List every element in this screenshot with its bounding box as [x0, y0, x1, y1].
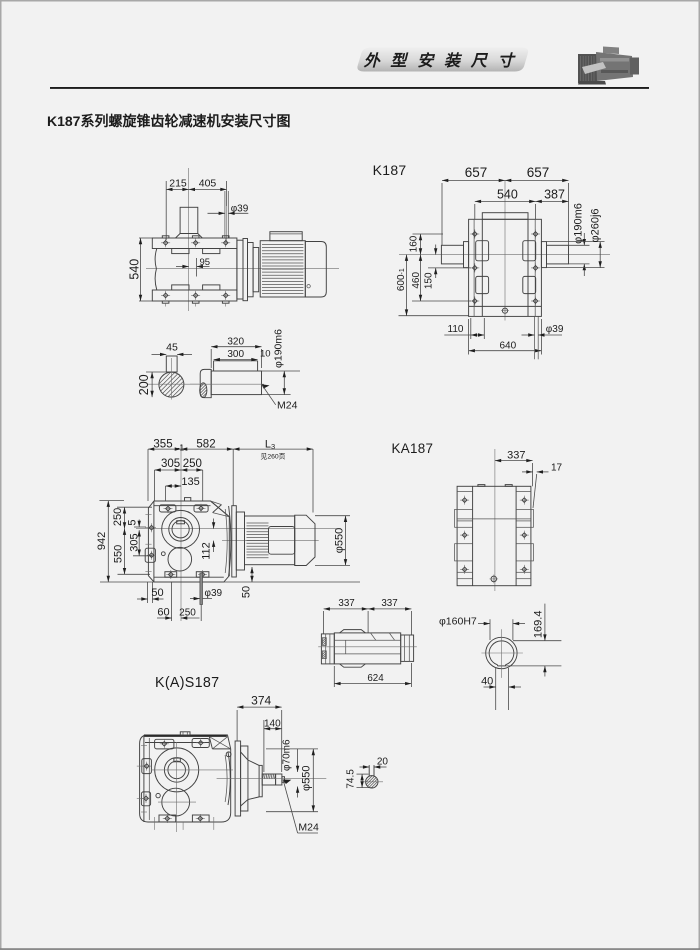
svg-text:160: 160: [409, 235, 420, 252]
svg-text:460: 460: [411, 272, 422, 289]
svg-text:20: 20: [377, 756, 389, 767]
svg-text:169.4: 169.4: [532, 611, 544, 639]
svg-text:φ260j6: φ260j6: [589, 208, 601, 242]
svg-text:405: 405: [199, 178, 217, 190]
svg-text:KA187: KA187: [392, 441, 434, 456]
svg-text:40: 40: [481, 676, 493, 688]
svg-text:640: 640: [499, 340, 516, 351]
svg-text:45: 45: [166, 341, 178, 353]
svg-text:φ550: φ550: [300, 766, 312, 792]
svg-text:320: 320: [227, 337, 244, 348]
svg-text:657: 657: [465, 165, 488, 180]
svg-text:-1: -1: [177, 443, 185, 452]
svg-text:582: 582: [196, 438, 215, 450]
svg-text:M24: M24: [298, 822, 319, 834]
svg-text:φ39: φ39: [231, 204, 249, 215]
svg-text:337: 337: [381, 598, 397, 609]
svg-text:φ190m6: φ190m6: [572, 203, 584, 244]
svg-text:17: 17: [551, 462, 563, 473]
svg-text:140: 140: [264, 718, 281, 729]
svg-text:540: 540: [497, 188, 518, 202]
svg-text:135: 135: [181, 476, 199, 488]
svg-text:200: 200: [137, 374, 151, 395]
svg-text:φ70m6: φ70m6: [281, 739, 292, 771]
svg-text:外型安装尺寸: 外型安装尺寸: [363, 52, 525, 70]
svg-text:337: 337: [338, 598, 354, 609]
svg-text:110: 110: [448, 324, 464, 335]
svg-text:387: 387: [544, 188, 565, 202]
svg-text:657: 657: [527, 165, 550, 180]
svg-text:150: 150: [424, 272, 435, 289]
svg-text:355: 355: [153, 438, 172, 450]
svg-text:337: 337: [507, 450, 525, 462]
svg-text:φ39: φ39: [205, 588, 223, 599]
svg-text:550: 550: [113, 545, 125, 563]
svg-text:K187: K187: [373, 162, 407, 178]
svg-text:305: 305: [161, 458, 180, 470]
svg-text:φ39: φ39: [546, 324, 564, 335]
svg-text:624: 624: [367, 673, 384, 684]
svg-text:50: 50: [240, 586, 252, 598]
svg-text:300: 300: [227, 349, 244, 360]
svg-text:95: 95: [200, 257, 211, 268]
svg-text:M24: M24: [277, 400, 298, 412]
svg-text:374: 374: [251, 694, 271, 708]
svg-text:60: 60: [157, 606, 169, 618]
svg-text:K(A)S187: K(A)S187: [155, 675, 219, 691]
svg-text:5: 5: [126, 519, 138, 525]
svg-text:942: 942: [96, 532, 108, 550]
svg-text:50: 50: [151, 587, 163, 599]
svg-text:74.5: 74.5: [345, 769, 356, 789]
svg-text:φ550: φ550: [333, 528, 345, 554]
svg-text:K187系列螺旋锥齿轮减速机安装尺寸图: K187系列螺旋锥齿轮减速机安装尺寸图: [47, 113, 290, 129]
svg-text:10: 10: [260, 349, 271, 360]
svg-text:φ160H7: φ160H7: [439, 615, 477, 627]
svg-text:215: 215: [169, 178, 187, 190]
svg-text:112: 112: [201, 542, 213, 560]
svg-text:540: 540: [128, 259, 142, 280]
svg-text:φ190m6: φ190m6: [272, 329, 284, 368]
svg-text:305: 305: [128, 533, 140, 551]
svg-text:见260页: 见260页: [261, 452, 286, 460]
svg-text:250: 250: [183, 458, 202, 470]
svg-text:250: 250: [179, 607, 196, 618]
svg-text:250: 250: [112, 508, 124, 526]
